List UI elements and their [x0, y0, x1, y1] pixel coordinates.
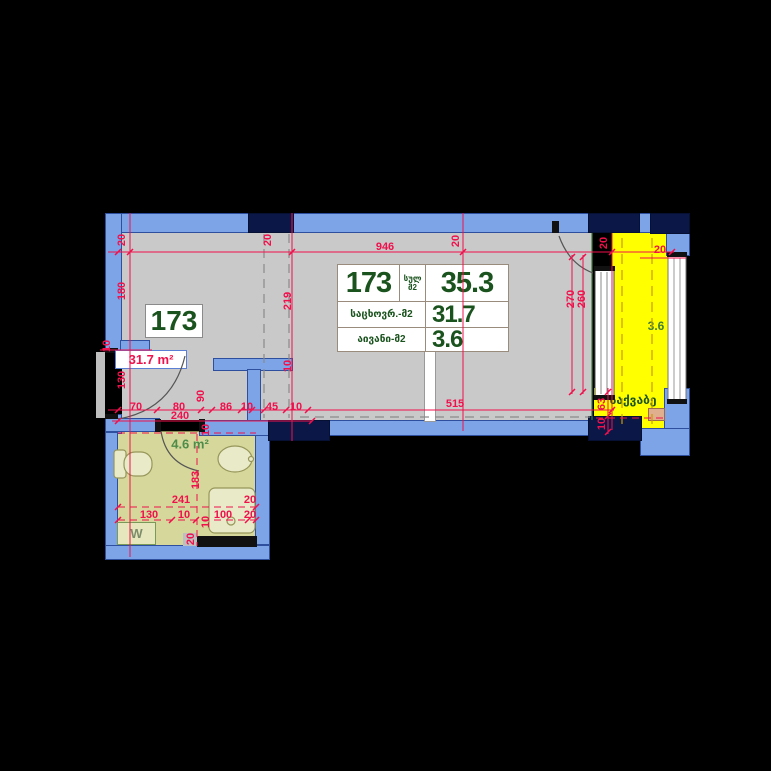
- dimension-label: 70: [130, 401, 142, 413]
- dimension-label: 20: [244, 509, 256, 521]
- dimension-label: 20: [262, 234, 274, 246]
- dimension-label: 515: [446, 398, 464, 410]
- dimension-label: 20: [654, 244, 666, 256]
- balcony-area-label: 3.6: [648, 319, 665, 333]
- column-top-right: [650, 213, 690, 234]
- dimension-label: 241: [172, 494, 190, 506]
- dimension-label: 100: [214, 509, 232, 521]
- shaft-black: [197, 536, 257, 547]
- dimension-label: 20: [450, 235, 462, 247]
- dimension-label: 10: [241, 401, 253, 413]
- bathroom-top-wall: [105, 418, 160, 432]
- balcony-door-jamb: [552, 221, 559, 233]
- dimension-label: 86: [220, 401, 232, 413]
- dimension-label: 10: [200, 516, 212, 528]
- area-table-row-balcony: აივანი-მ2 3.6: [338, 328, 508, 351]
- threshold-block: [648, 408, 665, 421]
- dimension-label: 20: [116, 234, 128, 246]
- exterior-window: [667, 252, 687, 404]
- main-bottom-wall: [199, 420, 612, 436]
- boiler-room-label: საქვაბე: [609, 393, 656, 407]
- washing-machine: W: [117, 522, 156, 545]
- dimension-label: 183: [190, 471, 202, 489]
- entry-landing: [96, 352, 105, 418]
- dimension-label: 260: [576, 290, 588, 308]
- unit-number: 173: [151, 305, 198, 337]
- table-living-value: 31.7: [426, 302, 508, 327]
- dimension-label: 10: [200, 424, 212, 436]
- dimension-label: 10: [282, 360, 294, 372]
- dimension-label: 20: [244, 494, 256, 506]
- column-top-2: [588, 213, 640, 233]
- table-living-label: საცხოვრ.-მ2: [338, 302, 426, 327]
- living-area-box: 31.7 m²: [115, 350, 187, 369]
- unit-number-box: 173: [145, 304, 203, 338]
- column-bottom-1: [268, 420, 330, 441]
- entry-door-jamb-bottom: [105, 414, 118, 419]
- dimension-label: 130: [140, 509, 158, 521]
- column-top-1: [248, 213, 294, 233]
- table-total-label: სულ მ2: [400, 265, 426, 301]
- dimension-label: 10: [596, 418, 608, 430]
- balcony-floor: [612, 233, 668, 390]
- table-unit-number: 173: [338, 265, 400, 301]
- table-balcony-value: 3.6: [426, 328, 508, 351]
- table-leader: [424, 351, 436, 422]
- dimension-label: 10: [178, 509, 190, 521]
- area-table-row-total: 173 სულ მ2 35.3: [338, 265, 508, 302]
- dimension-label: 946: [376, 241, 394, 253]
- dimension-label: 20: [185, 533, 197, 545]
- bath-door-jamb-left: [155, 419, 161, 432]
- total-label-line2: მ2: [404, 283, 422, 292]
- dimension-label: 10: [290, 401, 302, 413]
- washing-machine-label: W: [130, 526, 142, 541]
- total-label-line1: სულ: [404, 274, 422, 283]
- partition-stem: [247, 369, 261, 421]
- dimension-label: 219: [282, 292, 294, 310]
- bathroom-bottom-wall: [105, 545, 270, 560]
- table-total-value: 35.3: [426, 265, 508, 301]
- area-table-row-living: საცხოვრ.-მ2 31.7: [338, 302, 508, 328]
- bathroom-area-label: 4.6 m²: [171, 437, 209, 452]
- dimension-label: 180: [116, 282, 128, 300]
- dimension-label: 20: [598, 237, 610, 249]
- bathroom-right-wall: [255, 432, 270, 545]
- dimension-label: 90: [195, 390, 207, 402]
- bottom-right-wall: [640, 428, 690, 456]
- dimension-label: 10: [101, 340, 113, 352]
- floor-plan-canvas: 173 31.7 m² 4.6 m² 3.6 საქვაბე W 173 სულ…: [0, 0, 771, 771]
- area-table: 173 სულ მ2 35.3 საცხოვრ.-მ2 31.7 აივანი-…: [337, 264, 509, 352]
- dimension-label: 130: [116, 371, 128, 389]
- dimension-label: 45: [266, 401, 278, 413]
- dimension-label: 63: [596, 398, 608, 410]
- dimension-label: 240: [171, 410, 189, 422]
- table-balcony-label: აივანი-მ2: [338, 328, 426, 351]
- living-area-value: 31.7 m²: [129, 352, 174, 367]
